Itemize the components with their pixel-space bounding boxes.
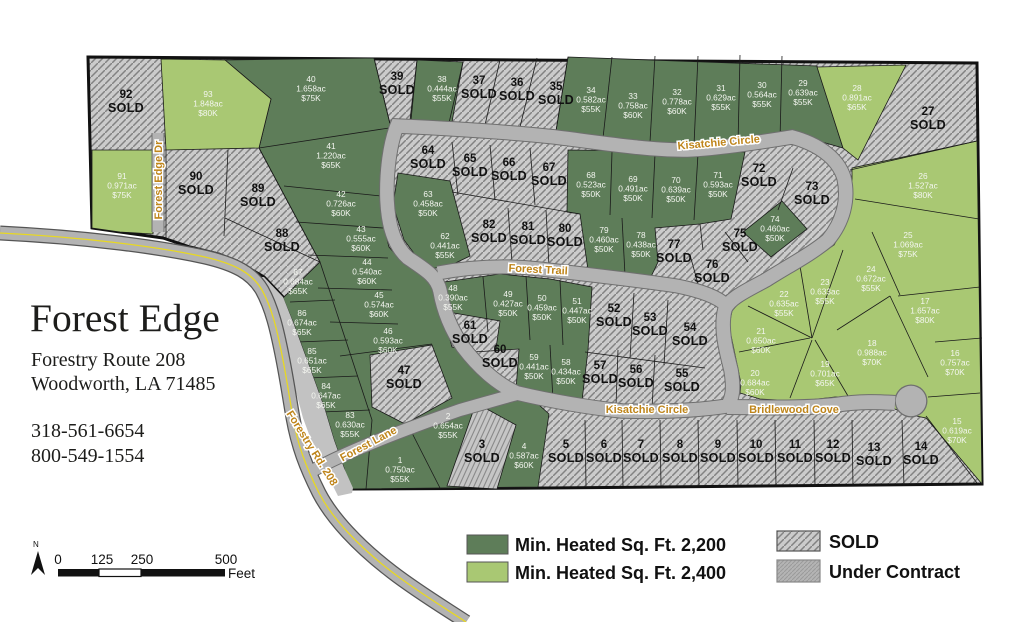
svg-text:31: 31 [716,83,726,93]
svg-text:SOLD: SOLD [240,195,276,209]
svg-text:3: 3 [479,439,485,451]
svg-text:43: 43 [356,224,366,234]
svg-text:0.650ac: 0.650ac [746,336,776,346]
svg-text:0.758ac: 0.758ac [618,101,648,111]
svg-text:125: 125 [91,552,114,567]
svg-text:SOLD: SOLD [461,87,497,101]
svg-text:1.848ac: 1.848ac [193,99,223,109]
svg-text:0.629ac: 0.629ac [706,93,736,103]
svg-text:24: 24 [866,264,876,274]
svg-text:0.434ac: 0.434ac [551,367,581,377]
svg-text:SOLD: SOLD [632,324,668,338]
svg-text:$50K: $50K [567,315,587,325]
svg-text:SOLD: SOLD [856,454,892,468]
svg-text:1.658ac: 1.658ac [296,84,326,94]
svg-text:SOLD: SOLD [738,451,774,465]
svg-text:SOLD: SOLD [741,175,777,189]
svg-text:$50K: $50K [708,189,728,199]
svg-text:21: 21 [756,326,766,336]
svg-text:61: 61 [464,320,477,332]
svg-text:0.491ac: 0.491ac [618,184,648,194]
svg-text:$50K: $50K [765,233,785,243]
svg-text:0.750ac: 0.750ac [385,465,415,475]
svg-text:$80K: $80K [913,190,933,200]
svg-text:$55K: $55K [581,104,601,114]
svg-text:SOLD: SOLD [178,183,214,197]
svg-text:$75K: $75K [112,190,132,200]
svg-text:$55K: $55K [438,430,458,440]
svg-text:SOLD: SOLD [664,380,700,394]
svg-text:32: 32 [672,87,682,97]
svg-text:SOLD: SOLD [482,356,518,370]
svg-text:0.684ac: 0.684ac [283,277,313,287]
svg-text:$65K: $65K [302,365,322,375]
svg-text:0.593ac: 0.593ac [703,180,733,190]
svg-text:81: 81 [522,221,535,233]
svg-text:$70K: $70K [945,367,965,377]
svg-text:48: 48 [448,283,458,293]
svg-text:$50K: $50K [623,193,643,203]
svg-text:Forest Edge Dr: Forest Edge Dr [153,140,165,220]
svg-text:19: 19 [820,359,830,369]
svg-text:N: N [33,540,39,549]
svg-text:0.441ac: 0.441ac [430,241,460,251]
svg-text:45: 45 [374,290,384,300]
svg-text:66: 66 [503,157,516,169]
svg-text:$60K: $60K [378,345,398,355]
svg-text:Under Contract: Under Contract [829,562,960,582]
svg-text:5: 5 [563,439,570,451]
svg-text:51: 51 [572,296,582,306]
svg-text:0.460ac: 0.460ac [760,224,790,234]
svg-text:$60K: $60K [623,110,643,120]
svg-text:4: 4 [522,441,527,451]
svg-text:44: 44 [362,257,372,267]
svg-text:SOLD: SOLD [452,165,488,179]
svg-text:27: 27 [922,106,935,118]
svg-text:34: 34 [586,85,596,95]
svg-text:0: 0 [54,552,62,567]
svg-text:7: 7 [638,439,644,451]
svg-text:SOLD: SOLD [618,376,654,390]
svg-text:SOLD: SOLD [547,235,583,249]
svg-text:14: 14 [915,441,928,453]
svg-text:12: 12 [827,439,840,451]
svg-text:500: 500 [215,552,238,567]
svg-text:52: 52 [608,303,621,315]
svg-text:$65K: $65K [316,400,336,410]
svg-text:90: 90 [190,171,203,183]
svg-text:85: 85 [307,346,317,356]
svg-text:0.684ac: 0.684ac [740,378,770,388]
svg-text:$55K: $55K [711,102,731,112]
svg-text:0.593ac: 0.593ac [373,336,403,346]
svg-text:80: 80 [559,223,572,235]
svg-text:0.390ac: 0.390ac [438,293,468,303]
svg-text:55: 55 [676,368,689,380]
svg-text:26: 26 [918,171,928,181]
svg-text:SOLD: SOLD [794,193,830,207]
svg-text:92: 92 [120,89,133,101]
svg-text:$60K: $60K [667,106,687,116]
svg-text:$60K: $60K [357,276,377,286]
svg-text:0.441ac: 0.441ac [519,362,549,372]
svg-text:0.523ac: 0.523ac [576,180,606,190]
svg-text:58: 58 [561,357,571,367]
svg-text:0.778ac: 0.778ac [662,97,692,107]
svg-text:$50K: $50K [532,312,552,322]
svg-text:SOLD: SOLD [531,174,567,188]
svg-text:70: 70 [671,175,681,185]
svg-text:$50K: $50K [594,244,614,254]
svg-text:1.220ac: 1.220ac [316,151,346,161]
svg-text:18: 18 [867,338,877,348]
svg-text:0.458ac: 0.458ac [413,199,443,209]
svg-text:Forestry Route 208: Forestry Route 208 [31,349,185,371]
svg-text:79: 79 [599,225,609,235]
svg-text:9: 9 [715,439,721,451]
svg-text:Bridlewood Cove: Bridlewood Cove [749,404,839,416]
svg-text:SOLD: SOLD [582,372,618,386]
svg-text:23: 23 [820,277,830,287]
svg-text:0.639ac: 0.639ac [788,88,818,98]
svg-text:2: 2 [446,411,451,421]
svg-text:SOLD: SOLD [623,451,659,465]
svg-text:$65K: $65K [847,102,867,112]
svg-text:$55K: $55K [793,97,813,107]
svg-text:SOLD: SOLD [452,332,488,346]
svg-text:$65K: $65K [815,378,835,388]
svg-text:$65K: $65K [292,327,312,337]
svg-text:SOLD: SOLD [829,532,879,552]
svg-text:76: 76 [706,259,719,271]
svg-text:1: 1 [398,455,403,465]
svg-text:13: 13 [868,442,881,454]
svg-text:0.444ac: 0.444ac [427,84,457,94]
svg-text:SOLD: SOLD [108,101,144,115]
svg-text:33: 33 [628,91,638,101]
svg-text:74: 74 [770,214,780,224]
svg-text:Woodworth, LA 71485: Woodworth, LA 71485 [31,373,216,395]
svg-text:SOLD: SOLD [672,334,708,348]
svg-text:$55K: $55K [390,474,410,484]
svg-text:Forest Edge: Forest Edge [30,296,220,340]
svg-text:$55K: $55K [435,250,455,260]
svg-text:$60K: $60K [369,309,389,319]
svg-text:$55K: $55K [774,308,794,318]
svg-text:SOLD: SOLD [662,451,698,465]
svg-text:1.657ac: 1.657ac [910,306,940,316]
svg-text:46: 46 [383,326,393,336]
svg-text:10: 10 [750,439,763,451]
svg-text:0.447ac: 0.447ac [562,306,592,316]
svg-text:$50K: $50K [581,189,601,199]
svg-text:30: 30 [757,80,767,90]
svg-text:$60K: $60K [351,243,371,253]
svg-text:59: 59 [529,352,539,362]
svg-text:1.527ac: 1.527ac [908,181,938,191]
svg-text:78: 78 [636,230,646,240]
svg-text:56: 56 [630,364,643,376]
svg-text:40: 40 [306,74,316,84]
svg-text:62: 62 [440,231,450,241]
svg-text:86: 86 [297,308,307,318]
svg-text:0.460ac: 0.460ac [589,235,619,245]
svg-text:$65K: $65K [321,160,341,170]
svg-text:0.971ac: 0.971ac [107,181,137,191]
svg-text:77: 77 [668,239,681,251]
svg-text:0.654ac: 0.654ac [433,421,463,431]
svg-text:0.674ac: 0.674ac [287,318,317,328]
svg-text:35: 35 [550,81,563,93]
svg-text:93: 93 [203,89,213,99]
svg-text:$50K: $50K [631,249,651,259]
svg-text:15: 15 [952,416,962,426]
svg-text:SOLD: SOLD [471,231,507,245]
svg-text:$55K: $55K [815,296,835,306]
svg-text:0.647ac: 0.647ac [311,391,341,401]
svg-text:50: 50 [537,293,547,303]
svg-text:Min. Heated Sq. Ft. 2,400: Min. Heated Sq. Ft. 2,400 [515,563,726,583]
svg-text:0.459ac: 0.459ac [527,303,557,313]
svg-text:SOLD: SOLD [903,453,939,467]
svg-text:SOLD: SOLD [777,451,813,465]
svg-text:800-549-1554: 800-549-1554 [31,445,144,467]
svg-text:47: 47 [398,365,411,377]
svg-text:36: 36 [511,77,524,89]
svg-text:17: 17 [920,296,930,306]
svg-text:91: 91 [117,171,127,181]
svg-text:SOLD: SOLD [722,240,758,254]
svg-text:SOLD: SOLD [499,89,535,103]
svg-text:Kisatchie Circle: Kisatchie Circle [606,404,689,416]
svg-text:0.582ac: 0.582ac [576,95,606,105]
svg-text:42: 42 [336,189,346,199]
svg-text:88: 88 [276,228,289,240]
svg-text:8: 8 [677,439,684,451]
svg-text:$50K: $50K [524,371,544,381]
svg-text:SOLD: SOLD [510,233,546,247]
svg-text:$50K: $50K [418,208,438,218]
svg-text:1.069ac: 1.069ac [893,240,923,250]
svg-text:0.988ac: 0.988ac [857,348,887,358]
svg-text:$55K: $55K [752,99,772,109]
svg-text:0.427ac: 0.427ac [493,299,523,309]
svg-text:0.891ac: 0.891ac [842,93,872,103]
svg-text:84: 84 [321,381,331,391]
svg-text:0.438ac: 0.438ac [626,240,656,250]
svg-text:60: 60 [494,344,507,356]
svg-text:69: 69 [628,174,638,184]
svg-text:0.701ac: 0.701ac [810,369,840,379]
svg-text:82: 82 [483,219,496,231]
svg-text:$60K: $60K [751,345,771,355]
svg-text:$60K: $60K [331,208,351,218]
svg-text:SOLD: SOLD [410,157,446,171]
svg-text:$60K: $60K [745,387,765,397]
svg-text:$55K: $55K [861,283,881,293]
svg-text:SOLD: SOLD [538,93,574,107]
svg-text:0.757ac: 0.757ac [940,358,970,368]
svg-text:0.564ac: 0.564ac [747,90,777,100]
svg-text:$80K: $80K [915,315,935,325]
svg-text:SOLD: SOLD [700,451,736,465]
svg-text:$55K: $55K [432,93,452,103]
svg-text:SOLD: SOLD [464,451,500,465]
svg-text:38: 38 [437,74,447,84]
svg-text:$70K: $70K [862,357,882,367]
svg-text:71: 71 [713,170,723,180]
svg-text:$55K: $55K [340,429,360,439]
svg-text:63: 63 [423,189,433,199]
svg-text:29: 29 [798,78,808,88]
svg-text:75: 75 [734,228,747,240]
svg-text:37: 37 [473,75,486,87]
svg-text:6: 6 [601,439,607,451]
svg-text:SOLD: SOLD [264,240,300,254]
svg-text:72: 72 [753,163,766,175]
svg-text:$50K: $50K [498,308,518,318]
svg-text:Min. Heated Sq. Ft. 2,200: Min. Heated Sq. Ft. 2,200 [515,535,726,555]
svg-text:Feet: Feet [228,566,255,581]
svg-text:$50K: $50K [556,376,576,386]
svg-text:$75K: $75K [301,93,321,103]
svg-text:73: 73 [806,181,819,193]
svg-text:0.672ac: 0.672ac [856,274,886,284]
svg-text:41: 41 [326,141,336,151]
svg-text:0.633ac: 0.633ac [810,287,840,297]
svg-text:0.635ac: 0.635ac [769,299,799,309]
svg-text:$50K: $50K [666,194,686,204]
svg-text:0.540ac: 0.540ac [352,267,382,277]
svg-text:$60K: $60K [514,460,534,470]
svg-text:$65K: $65K [288,286,308,296]
svg-text:64: 64 [422,145,435,157]
svg-text:28: 28 [852,83,862,93]
svg-text:0.619ac: 0.619ac [942,426,972,436]
svg-text:SOLD: SOLD [491,169,527,183]
svg-text:25: 25 [903,230,913,240]
svg-text:SOLD: SOLD [694,271,730,285]
svg-text:0.587ac: 0.587ac [509,451,539,461]
svg-text:22: 22 [779,289,789,299]
svg-text:87: 87 [293,267,303,277]
svg-text:0.555ac: 0.555ac [346,234,376,244]
svg-text:0.726ac: 0.726ac [326,199,356,209]
svg-text:54: 54 [684,322,697,334]
svg-text:20: 20 [750,368,760,378]
svg-text:89: 89 [252,183,265,195]
svg-text:$75K: $75K [898,249,918,259]
svg-text:250: 250 [131,552,154,567]
svg-text:$70K: $70K [947,435,967,445]
svg-text:SOLD: SOLD [379,83,415,97]
svg-text:$80K: $80K [198,108,218,118]
svg-text:83: 83 [345,410,355,420]
svg-text:49: 49 [503,289,513,299]
svg-text:318-561-6654: 318-561-6654 [31,420,144,442]
svg-text:$55K: $55K [443,302,463,312]
svg-text:67: 67 [543,162,556,174]
svg-text:SOLD: SOLD [596,315,632,329]
svg-text:53: 53 [644,312,657,324]
svg-text:0.574ac: 0.574ac [364,300,394,310]
svg-text:0.651ac: 0.651ac [297,356,327,366]
svg-text:16: 16 [950,348,960,358]
svg-text:SOLD: SOLD [656,251,692,265]
svg-text:SOLD: SOLD [910,118,946,132]
svg-text:11: 11 [789,439,802,451]
svg-text:SOLD: SOLD [548,451,584,465]
svg-text:SOLD: SOLD [586,451,622,465]
svg-text:SOLD: SOLD [815,451,851,465]
svg-text:57: 57 [594,360,607,372]
svg-text:0.639ac: 0.639ac [661,185,691,195]
svg-text:68: 68 [586,170,596,180]
svg-text:SOLD: SOLD [386,377,422,391]
svg-text:0.630ac: 0.630ac [335,420,365,430]
svg-text:65: 65 [464,153,477,165]
svg-text:39: 39 [391,71,404,83]
